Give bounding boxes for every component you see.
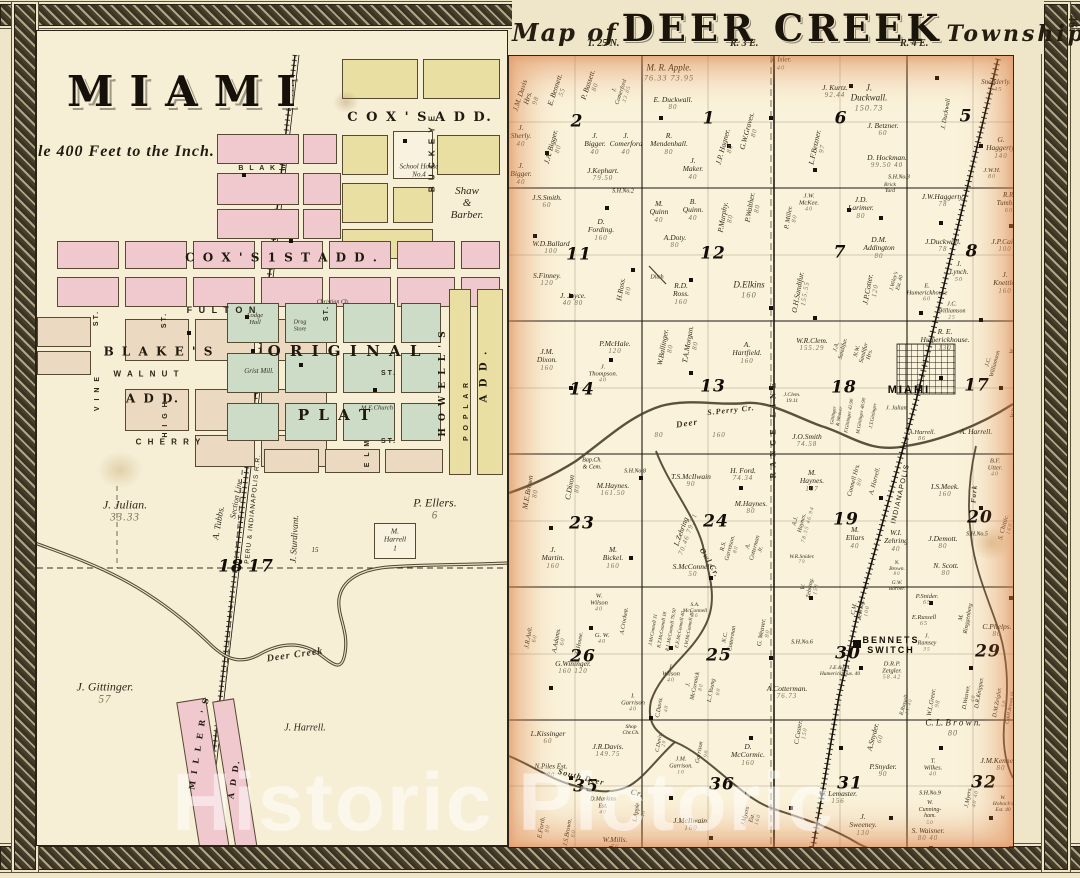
map-label: H O W E L L ' S <box>439 329 449 436</box>
house-marker <box>969 666 973 670</box>
map-label: M.Bickel.160 <box>603 546 624 570</box>
map-label: G.Wininger.160 120 <box>555 660 591 676</box>
map-label: R.R.Tumblin.60 <box>997 192 1014 214</box>
map-label: ST. <box>323 305 331 321</box>
map-label: J.Kephart.79.50 <box>587 167 619 183</box>
map-label: J.D.Larimer.80 <box>848 196 874 220</box>
map-label: J.Martin.160 <box>542 546 565 570</box>
map-label: E.Humerickhouse60 <box>907 283 948 304</box>
ornate-border-bottom <box>0 846 1080 870</box>
plat-block <box>343 303 395 343</box>
section-number: 23 <box>569 515 595 534</box>
map-label: DrugStore <box>294 319 307 332</box>
map-label: J.W.Zeigler.46.34 <box>1013 663 1014 684</box>
miami-plat-panel: MIAMI Scale 400 Feet to the Inch. C O X … <box>36 30 508 846</box>
house-marker <box>289 239 293 243</box>
plat-block <box>37 351 91 375</box>
map-label: ST. <box>381 438 397 446</box>
map-label: J.W.H.80 <box>983 167 1000 181</box>
plat-block <box>303 134 337 164</box>
map-label: D. Hockman.99.50 40 <box>867 154 907 170</box>
township-grid-label: T. 25 N. <box>587 38 619 49</box>
house-marker <box>187 331 191 335</box>
plat-block <box>342 59 418 99</box>
map-label: 160 <box>712 432 726 440</box>
map-label: R.Mendenhall.80 <box>650 132 688 156</box>
plat-block <box>437 135 500 175</box>
house-marker <box>659 116 663 120</box>
map-label: 80 <box>655 432 664 440</box>
map-label: J. Betzner.60 <box>867 122 898 138</box>
plat-block <box>303 209 341 239</box>
map-label: J. Julian. <box>886 406 908 413</box>
map-label: W.Cunning-ham.50 <box>919 800 942 826</box>
map-label: J.Demott.80 <box>928 535 957 551</box>
map-label: J. Isler.40 <box>771 57 791 72</box>
plat-block <box>342 135 388 175</box>
map-label: D.Fording.160 <box>588 218 614 242</box>
house-marker <box>769 306 773 310</box>
plat-block <box>37 317 91 347</box>
map-label: J.R.Davis.149.75 <box>592 743 623 759</box>
title-township-name: DEER CREEK <box>622 6 943 50</box>
map-label: T.S.McIlwain90 <box>671 473 711 489</box>
map-label: J.E.&I.H.Humerickhous. 40 <box>820 665 860 677</box>
section-number: 11 <box>566 246 592 265</box>
map-title: Map of DEER CREEK Township T. 25 N. R. 3… <box>512 0 1044 54</box>
map-label: M.Quinn40 <box>650 200 669 224</box>
house-marker <box>609 358 613 362</box>
map-label: J.O.Smith74.58 <box>792 433 822 449</box>
map-label: R.D.Ross.160 <box>673 282 689 306</box>
map-label: Christian Ch. <box>317 300 350 307</box>
atlas-page: 46 Map of DEER CREEK Township T. 25 N. R… <box>0 0 1080 878</box>
township-map-panel: 2165111278141318172324192026253029353631… <box>508 55 1014 848</box>
map-label: W.R.Clem.155.29 <box>796 337 828 353</box>
map-label: J.Ramsey35 <box>918 633 937 652</box>
map-label: J.W.Haggerty.78 <box>922 193 964 209</box>
map-label: D.R.P.Zetgler.58.42 <box>882 661 902 682</box>
map-label: J.McIlwain.160 <box>673 817 709 833</box>
map-label: Shaw&Barber. <box>451 185 484 221</box>
map-label: C O X ' S 1 S T A D D . <box>185 251 379 264</box>
section-number: 20 <box>967 509 993 528</box>
map-label: B L A K E <box>238 165 287 173</box>
section-number: 7 <box>834 244 847 263</box>
plat-block <box>227 403 279 441</box>
map-label: S.H.No.6 <box>791 640 813 647</box>
map-label: S.H.No.5 <box>966 532 988 539</box>
page-number: 46 <box>1065 15 1080 29</box>
plat-block <box>401 403 441 441</box>
plat-block <box>342 183 388 223</box>
map-label: P.Snyder.90 <box>869 763 896 779</box>
map-label: W.Zehring.158 <box>799 576 822 600</box>
section-number: 30 <box>835 645 861 664</box>
map-label: G.Haggerty.140 <box>986 136 1014 160</box>
map-label: W. Lemaster.156 <box>819 790 857 806</box>
map-label: ST. <box>381 370 397 378</box>
map-label: BrickYard <box>884 182 896 194</box>
map-label: J.C.Williamson25 <box>938 301 965 320</box>
map-label: ST. <box>161 312 169 328</box>
house-marker <box>299 363 303 367</box>
map-label: W.Wilson40 <box>590 593 608 614</box>
plat-block <box>217 173 299 205</box>
map-label: C. L. B r o w n.80 <box>925 719 980 738</box>
house-marker <box>689 371 693 375</box>
map-label: J.M.Garrison.10 <box>669 756 693 775</box>
house-marker <box>739 486 743 490</box>
map-label: P.McHale.120 <box>599 340 631 356</box>
range-4e-label: R. 4 E. <box>900 38 928 49</box>
house-marker <box>589 626 593 630</box>
ornate-border-left <box>14 4 36 870</box>
house-marker <box>879 216 883 220</box>
map-label: E. Duckwall.80 <box>654 96 693 112</box>
plat-block <box>303 173 341 205</box>
section-number: 5 <box>960 108 973 127</box>
map-label: N. Scott.80 <box>933 562 959 578</box>
house-marker <box>979 144 983 148</box>
map-label: RANGE LINE <box>770 378 779 478</box>
map-label: J.Duckwall.150.73 <box>851 84 888 113</box>
map-label: Bap.Ch.& Cem. <box>582 457 602 470</box>
map-label: Grist Mill. <box>244 368 274 376</box>
map-label: S.H.No.9 <box>919 791 941 798</box>
map-label: A.Cotterman.76.73 <box>767 685 807 701</box>
map-label: G. W.40 <box>595 632 609 646</box>
map-label: T.Wilkes.40 <box>924 758 943 779</box>
house-marker <box>789 806 793 810</box>
section-number: 29 <box>975 643 1001 662</box>
section-number: 18 <box>831 379 857 398</box>
house-marker <box>935 76 939 80</box>
map-label: LodgeHall <box>247 312 263 326</box>
miami-scale-note: Scale 400 Feet to the Inch. <box>36 143 215 161</box>
title-township-word: Township <box>946 21 1080 47</box>
map-label: ST. <box>93 310 101 326</box>
map-label: S.H.No.2 <box>612 189 634 196</box>
map-label: J.Thompson.40 <box>589 364 618 385</box>
map-label: A.Hartfield.160 <box>732 341 761 365</box>
house-marker <box>889 816 893 820</box>
map-label: V I N E <box>94 375 102 411</box>
map-label: J.S.Smith.60 <box>532 194 562 210</box>
map-label: L.Snodderly.145 <box>981 71 1011 93</box>
house-marker <box>769 116 773 120</box>
map-label: J.Bigger.40 <box>584 132 605 156</box>
map-label: G.W.Barber. <box>889 580 905 592</box>
map-label: D.MarkinsEst.40 <box>590 796 616 815</box>
map-label: MIAMI <box>888 384 930 396</box>
map-label: E L M <box>364 439 372 468</box>
map-label: H I G H <box>162 400 170 437</box>
house-marker <box>631 268 635 272</box>
map-label: J.Wilson40 <box>662 664 680 685</box>
map-label: I.Garrison40 <box>621 693 645 714</box>
plat-block <box>217 134 299 164</box>
map-label: P O P L A R <box>463 381 471 441</box>
house-marker <box>649 716 653 720</box>
section-number: 13 <box>700 378 726 397</box>
map-label: P. Ellers.6 <box>413 496 456 521</box>
house-marker <box>242 173 246 177</box>
map-label: E.Russell65 <box>912 614 936 628</box>
map-label: A D D . <box>479 349 490 402</box>
section-number: 2 <box>571 113 584 132</box>
section-number: 17 <box>964 377 990 396</box>
section-number: 1 <box>703 110 716 129</box>
house-marker <box>749 736 753 740</box>
map-label: D.Elkins160 <box>733 281 764 300</box>
map-label: L.Kissinger60 <box>531 730 566 746</box>
map-label: J.M.Dixon.160 <box>537 348 557 372</box>
map-label: P.Snider.65 <box>916 593 939 607</box>
house-marker <box>549 686 553 690</box>
map-label: M.Haynes.80 <box>735 500 768 516</box>
map-label: A.Harrell.86 <box>909 429 935 443</box>
map-label: H. Ford.74.34 <box>730 467 756 483</box>
section-number: 36 <box>709 776 735 795</box>
map-label: J.Bigger.40 <box>510 162 531 186</box>
house-marker <box>879 496 883 500</box>
plat-block <box>401 303 441 343</box>
map-label: ShopChr.Ch. <box>622 724 639 736</box>
house-marker <box>689 278 693 282</box>
map-label: W.D.Ballard100 <box>532 240 569 256</box>
ornate-border-right <box>1044 4 1068 870</box>
map-label: W.Mills.76 <box>603 836 628 848</box>
section-number: 8 <box>966 243 979 262</box>
map-label: N.Brown.80 <box>889 560 905 578</box>
map-label: J.M.HawlingHrs. 40 <box>1013 461 1014 479</box>
map-label: A. Harrell. <box>960 428 992 436</box>
map-label: J.Clem.19.11 <box>784 392 801 404</box>
house-marker <box>929 846 933 848</box>
plat-block <box>423 59 500 99</box>
house-marker <box>919 311 923 315</box>
map-label: O R I G I N A L <box>268 343 423 360</box>
map-label: A D D. <box>126 392 180 405</box>
house-marker <box>939 221 943 225</box>
house-marker <box>251 349 255 353</box>
map-label: M.Ellars40 <box>846 526 864 550</box>
map-label: School HouseNo.4 <box>400 163 439 178</box>
map-label: J.M.Kennedy.80 <box>980 757 1014 773</box>
miami-title: MIAMI <box>67 67 312 116</box>
map-label: Fork <box>970 484 979 503</box>
plat-block <box>385 449 443 473</box>
map-label: J.P.Cain.100 <box>991 238 1014 254</box>
house-marker <box>403 139 407 143</box>
house-marker <box>639 476 643 480</box>
house-marker <box>533 234 537 238</box>
map-label: M.Haynes.107 <box>800 469 824 493</box>
plat-block <box>57 277 119 307</box>
house-marker <box>813 316 817 320</box>
map-label: D.M.Addington80 <box>863 236 894 260</box>
section-number: 17 <box>248 558 274 577</box>
map-label: S.H.No.8 <box>624 469 646 476</box>
map-label: J. Harrell. <box>284 723 326 734</box>
plat-block <box>461 241 500 269</box>
house-marker <box>1009 596 1013 600</box>
house-marker <box>769 656 773 660</box>
house-marker <box>813 168 817 172</box>
map-label: J.Lynch.50 <box>950 261 969 283</box>
house-marker <box>1009 224 1013 228</box>
section-number: 18 <box>218 558 244 577</box>
section-number: 24 <box>703 513 729 532</box>
map-label: J.Maker.40 <box>683 157 704 181</box>
map-label: J.Knettle.160 <box>993 271 1014 295</box>
map-label: D.McCormic.160 <box>731 743 765 767</box>
map-label: B L A K E ' S <box>104 345 215 358</box>
map-label: C.Phelps.80 <box>982 623 1011 639</box>
map-label: S.Finney.120 <box>533 272 561 288</box>
plat-block <box>217 209 299 239</box>
map-label: BENNETSSWITCH <box>862 636 919 656</box>
house-marker <box>979 318 983 322</box>
map-label: W.I.Zehring40 <box>884 529 908 553</box>
plat-block <box>125 241 187 269</box>
map-label: J. Kurtz.92.44 <box>822 84 848 100</box>
house-marker <box>989 816 993 820</box>
map-label: B.Quinn.40 <box>683 198 704 222</box>
plat-block <box>264 449 319 473</box>
map-label: J.W.McKee.40 <box>799 193 819 214</box>
map-label: J. Gittinger.57 <box>77 680 134 705</box>
map-label: B.F.Utter.40 <box>988 458 1003 479</box>
map-label: B U C K E Y E <box>429 114 438 192</box>
map-label: W A L N U T <box>113 371 180 380</box>
section-number: 6 <box>835 110 848 129</box>
map-label: C O X ' S A D D. <box>347 111 493 125</box>
map-label: J. Joyce.40 80 <box>560 292 586 308</box>
house-marker <box>1009 846 1013 848</box>
house-marker <box>809 846 813 848</box>
house-marker <box>669 796 673 800</box>
map-label: S.A.McConnell26 <box>683 602 707 620</box>
map-label: W.R.Snider.79 <box>789 554 814 566</box>
map-label: 15 <box>312 547 319 555</box>
map-label: M.Harrell1 <box>384 528 406 553</box>
plat-block <box>393 187 433 223</box>
house-marker <box>629 556 633 560</box>
house-marker <box>939 746 943 750</box>
map-label: C H E R R Y <box>136 439 203 448</box>
plat-block <box>125 277 187 307</box>
house-marker <box>709 836 713 840</box>
plat-block <box>57 241 119 269</box>
house-marker <box>373 388 377 392</box>
house-marker <box>549 526 553 530</box>
house-marker <box>605 206 609 210</box>
house-marker <box>999 386 1003 390</box>
map-label: J.Sweeney.130 <box>849 813 876 837</box>
house-marker <box>939 376 943 380</box>
house-marker <box>839 746 843 750</box>
map-label: W.Hoback'sEst. 40 <box>993 795 1013 813</box>
map-label: J.Sherly.40 <box>511 124 532 148</box>
map-label: J.Duckwall.78 <box>925 238 961 254</box>
plat-block <box>397 241 455 269</box>
map-label: J. Julian.33.33 <box>103 498 147 523</box>
map-label: A.Doty.80 <box>664 234 687 250</box>
map-label: M.Haynes.161.50 <box>597 482 630 498</box>
map-label: Ditch <box>650 275 663 282</box>
section-number: 12 <box>700 245 726 264</box>
map-label: C.M.Zehring.100 <box>850 598 873 622</box>
map-label: A.J.Phelps.40 <box>1013 726 1014 747</box>
map-label: S. Waisner.80 40 <box>912 827 945 843</box>
map-label: S.H.No.3 <box>888 175 910 182</box>
map-label: M. R. Apple.76.33 73.95 <box>644 64 694 83</box>
map-label: M.E.Church <box>361 404 393 411</box>
range-3e-label: R. 3 E. <box>730 38 758 49</box>
map-label: S.McConnell.50 <box>673 563 714 579</box>
map-label: R. E.Humerickhouse.130 <box>921 328 970 352</box>
map-label: I.S.Meek.160 <box>931 483 959 499</box>
map-label: J.Comerford40 <box>610 132 643 156</box>
